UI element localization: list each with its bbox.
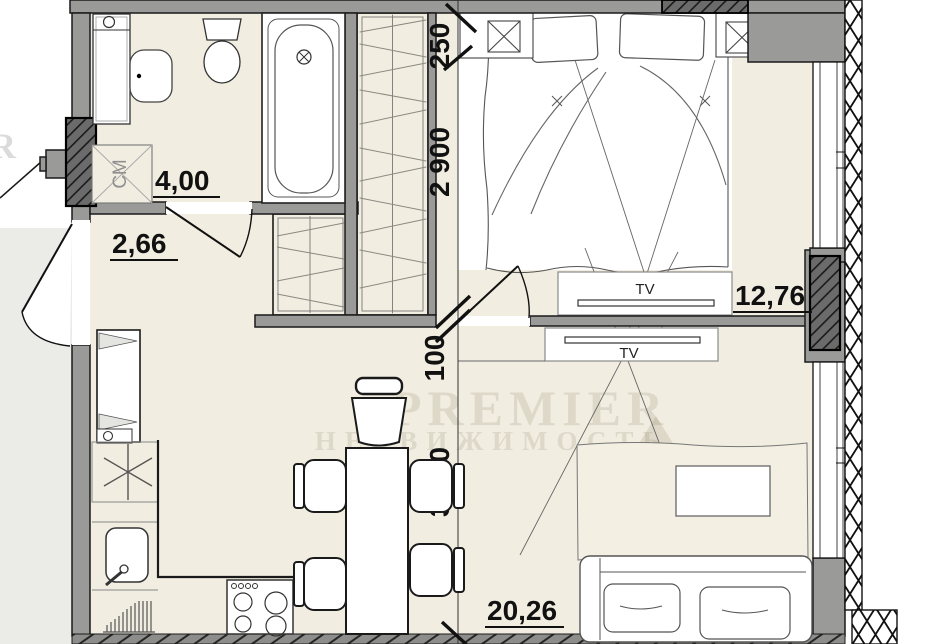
area-label-living: 20,26: [487, 595, 557, 626]
toilet-bowl: [204, 41, 240, 83]
faucet-head: [120, 565, 128, 573]
lintel-hatched: [662, 0, 748, 13]
chair-backrest: [454, 464, 464, 508]
chair-right-top: [410, 460, 464, 512]
wall-bathroom-bottom-left: [90, 202, 166, 214]
area-label-bathroom: 4,00: [155, 165, 210, 196]
dim-100: 100: [419, 335, 450, 382]
entry-stub-step: [40, 157, 46, 171]
sofa: [580, 556, 812, 642]
window-living: [813, 362, 845, 558]
chair-left-bottom: [294, 558, 346, 610]
vent-shaft-right: [810, 256, 840, 350]
washing-machine: СМ: [92, 145, 152, 203]
dim-2900: 2 900: [424, 127, 455, 197]
tv-label-living: TV: [619, 345, 638, 362]
area-label-hallway: 2,66: [112, 228, 167, 259]
wall-bathroom-wardrobe: [345, 13, 357, 315]
wall-right-bottom-block: [813, 558, 845, 636]
chair-backrest: [454, 548, 464, 592]
wall-left-lower: [72, 345, 90, 636]
nightstand-left: [460, 13, 533, 58]
toilet: [203, 19, 241, 83]
vanity-cabinet: [93, 14, 130, 124]
bathtub: [262, 13, 345, 203]
chair-seat: [304, 558, 346, 610]
dining-table: [346, 448, 408, 634]
chair-seat: [410, 544, 452, 596]
insulation-strip-right: [845, 0, 862, 610]
chair-right-bottom: [410, 544, 464, 596]
basin-faucet: [137, 74, 141, 78]
tv-unit-bedroom: TV: [558, 272, 732, 315]
washing-machine-label: СМ: [110, 159, 131, 188]
door-opening: [456, 316, 530, 326]
area-label-bedroom: 12,76: [735, 280, 805, 311]
stove: [227, 580, 293, 636]
pillow-left: [530, 15, 598, 62]
wash-basin: [130, 50, 172, 102]
wardrobe-hallway: [273, 214, 348, 315]
tv-screen: [565, 337, 700, 343]
tv-screen: [578, 300, 714, 306]
chair-top: [352, 378, 406, 446]
kitchen-cabinet-tall: [97, 330, 140, 443]
door-opening: [166, 202, 252, 214]
sofa-cushion: [604, 584, 680, 632]
wall-bedroom-living: [530, 316, 813, 326]
chair-left-top: [294, 460, 346, 512]
door-opening: [72, 220, 90, 345]
toilet-tank: [203, 19, 241, 40]
chair-backrest: [294, 562, 304, 606]
chair-seat: [352, 398, 406, 446]
vanity-knob: [104, 17, 115, 28]
chair-seat: [304, 460, 346, 512]
dim-250: 250: [424, 23, 455, 70]
wardrobe-tall: [357, 13, 428, 315]
floor-plan-svg: R PREMIER НЕДВИЖИМОСТЬ: [0, 0, 934, 644]
insulation-corner-block: [852, 610, 897, 644]
wall-under-wardrobes: [255, 315, 436, 327]
chair-seat: [410, 460, 452, 512]
chair-backrest: [356, 378, 402, 394]
window-bedroom: [813, 62, 845, 248]
pillow-right: [619, 14, 704, 61]
wall-top-right-block: [748, 13, 845, 62]
watermark-edge-letter: R: [0, 126, 17, 166]
coffee-table: [676, 466, 770, 516]
tv-label-bedroom: TV: [635, 281, 654, 298]
floor-plan-page: R PREMIER НЕДВИЖИМОСТЬ: [0, 0, 934, 644]
chair-backrest: [294, 464, 304, 508]
